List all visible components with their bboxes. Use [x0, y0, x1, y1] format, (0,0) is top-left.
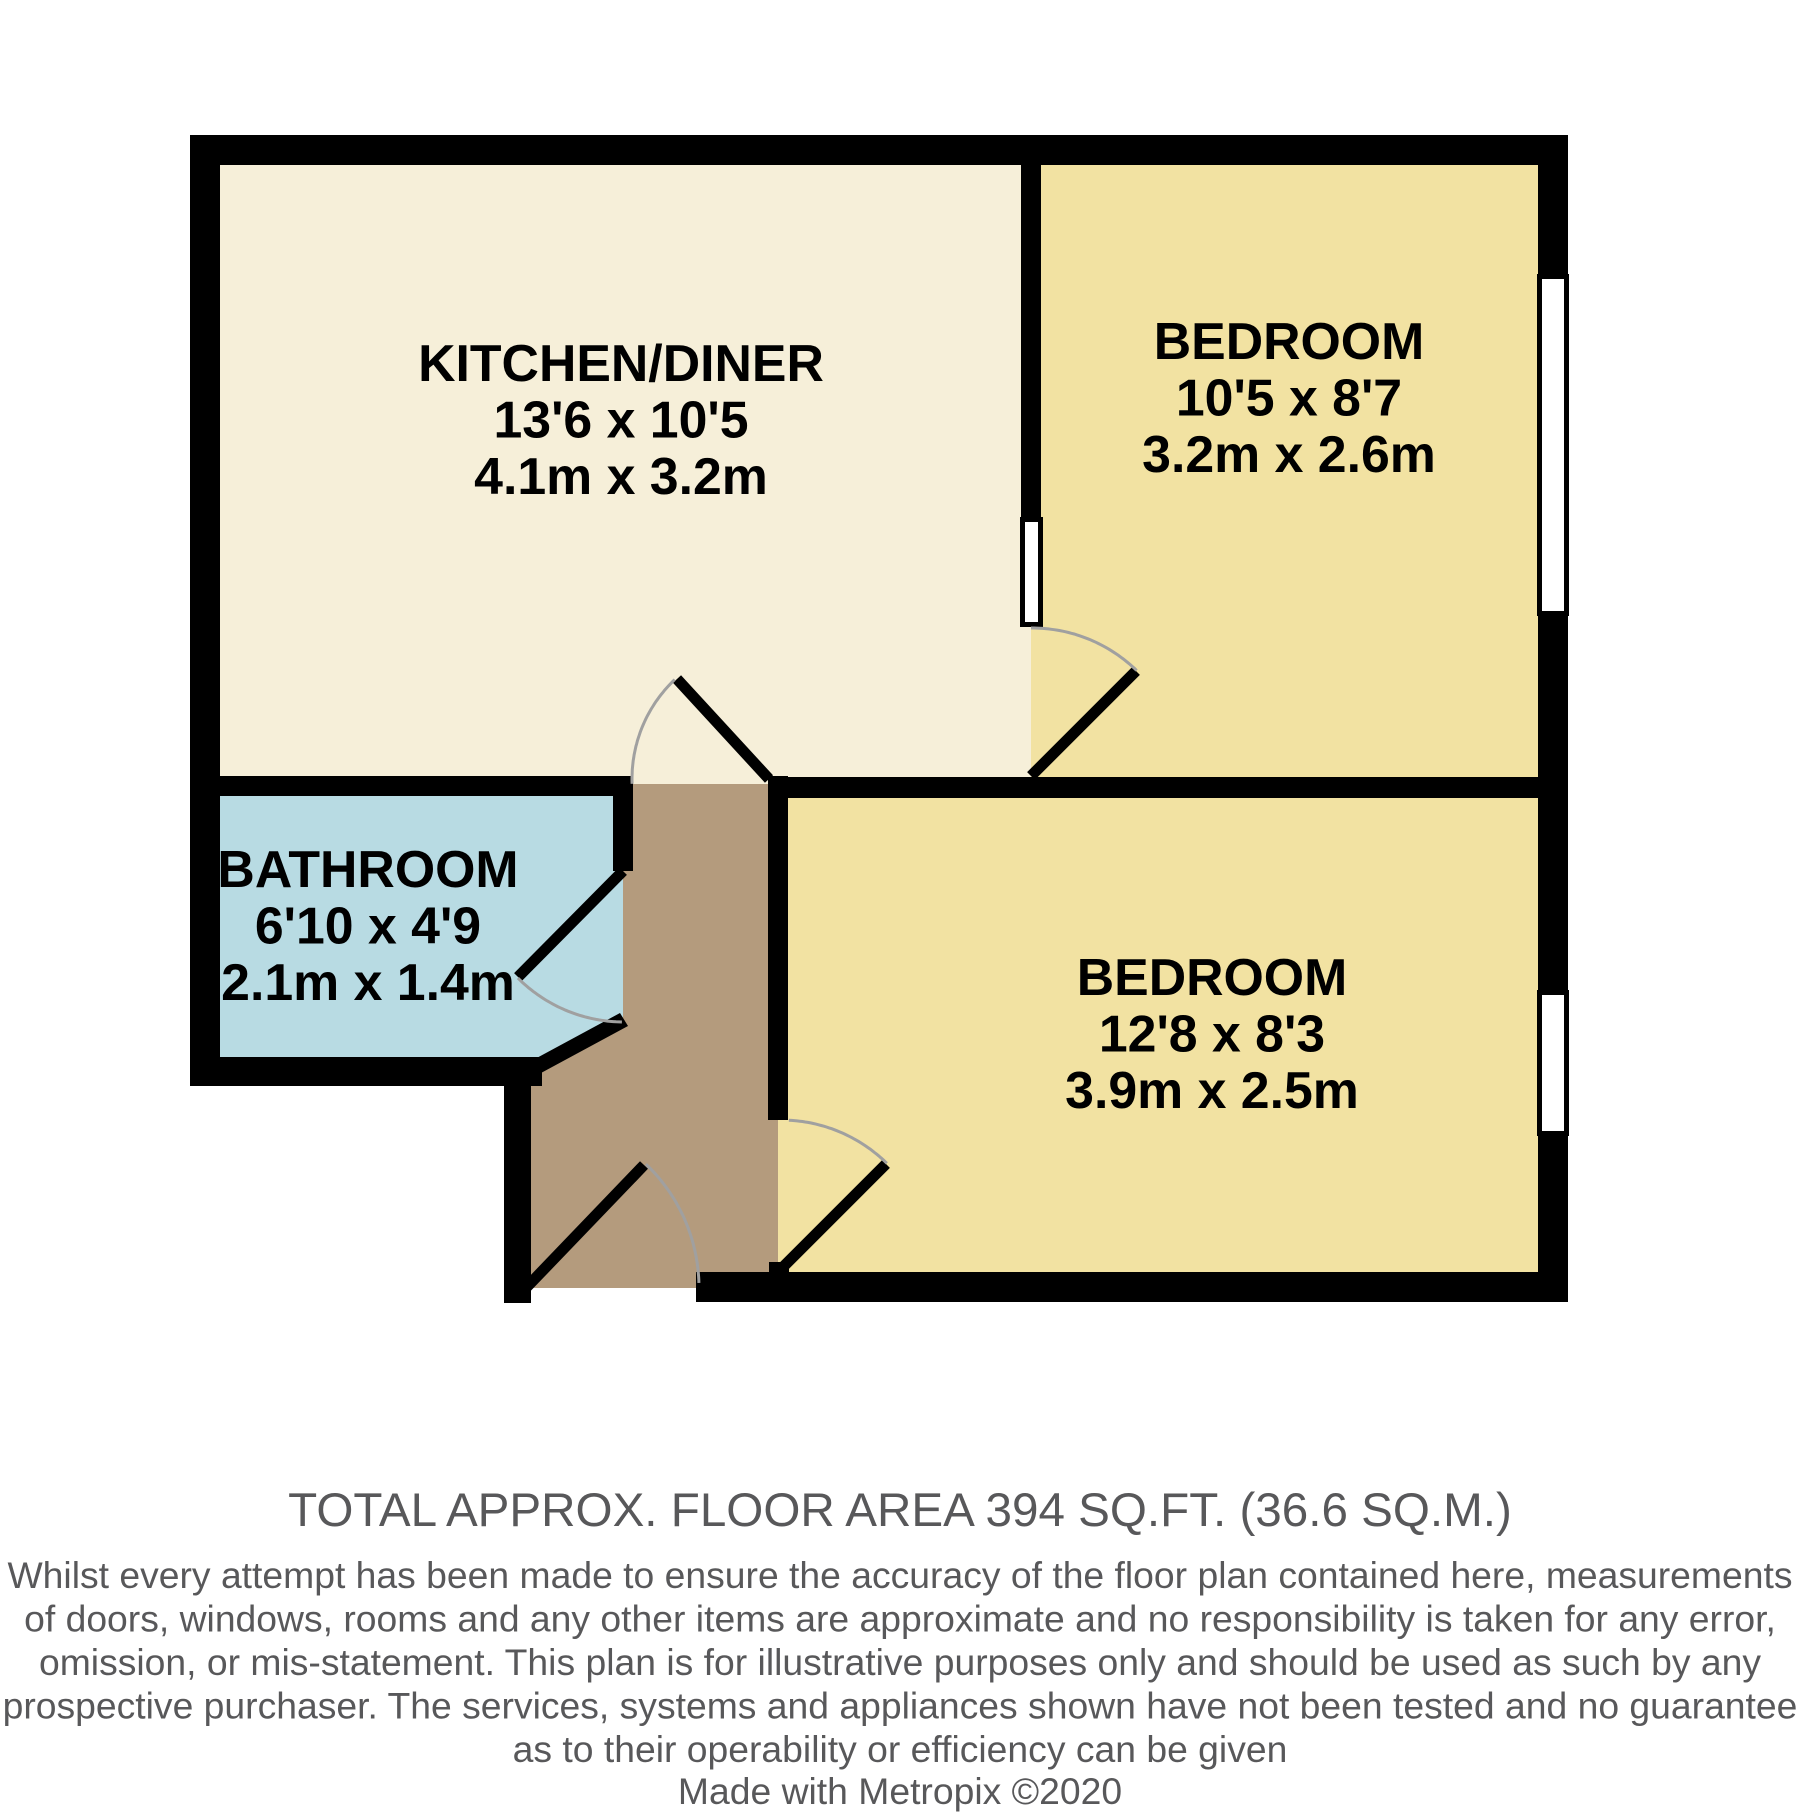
- svg-text:2.1m x 1.4m: 2.1m x 1.4m: [221, 953, 515, 1011]
- svg-text:BATHROOM: BATHROOM: [217, 840, 518, 898]
- svg-text:of doors, windows, rooms and a: of doors, windows, rooms and any other i…: [24, 1598, 1776, 1640]
- svg-text:4.1m x 3.2m: 4.1m x 3.2m: [474, 447, 768, 505]
- svg-text:omission, or mis-statement. Th: omission, or mis-statement. This plan is…: [39, 1641, 1761, 1683]
- svg-text:12'8 x 8'3: 12'8 x 8'3: [1099, 1005, 1325, 1063]
- svg-text:13'6 x 10'5: 13'6 x 10'5: [493, 391, 748, 449]
- svg-text:BEDROOM: BEDROOM: [1077, 948, 1348, 1006]
- svg-text:10'5 x 8'7: 10'5 x 8'7: [1176, 369, 1402, 427]
- svg-text:3.9m x 2.5m: 3.9m x 2.5m: [1065, 1061, 1359, 1119]
- svg-text:prospective purchaser. The ser: prospective purchaser. The services, sys…: [3, 1685, 1798, 1727]
- svg-text:3.2m x 2.6m: 3.2m x 2.6m: [1142, 425, 1436, 483]
- svg-text:Whilst every attempt has been: Whilst every attempt has been made to en…: [7, 1554, 1792, 1596]
- svg-text:TOTAL APPROX. FLOOR AREA 394 S: TOTAL APPROX. FLOOR AREA 394 SQ.FT. (36.…: [288, 1484, 1512, 1537]
- svg-text:as to their operability or eff: as to their operability or efficiency ca…: [513, 1728, 1288, 1770]
- svg-text:Made with Metropix ©2020: Made with Metropix ©2020: [678, 1770, 1122, 1812]
- svg-text:KITCHEN/DINER: KITCHEN/DINER: [418, 334, 824, 392]
- svg-text:6'10 x 4'9: 6'10 x 4'9: [255, 897, 481, 955]
- svg-text:BEDROOM: BEDROOM: [1154, 312, 1425, 370]
